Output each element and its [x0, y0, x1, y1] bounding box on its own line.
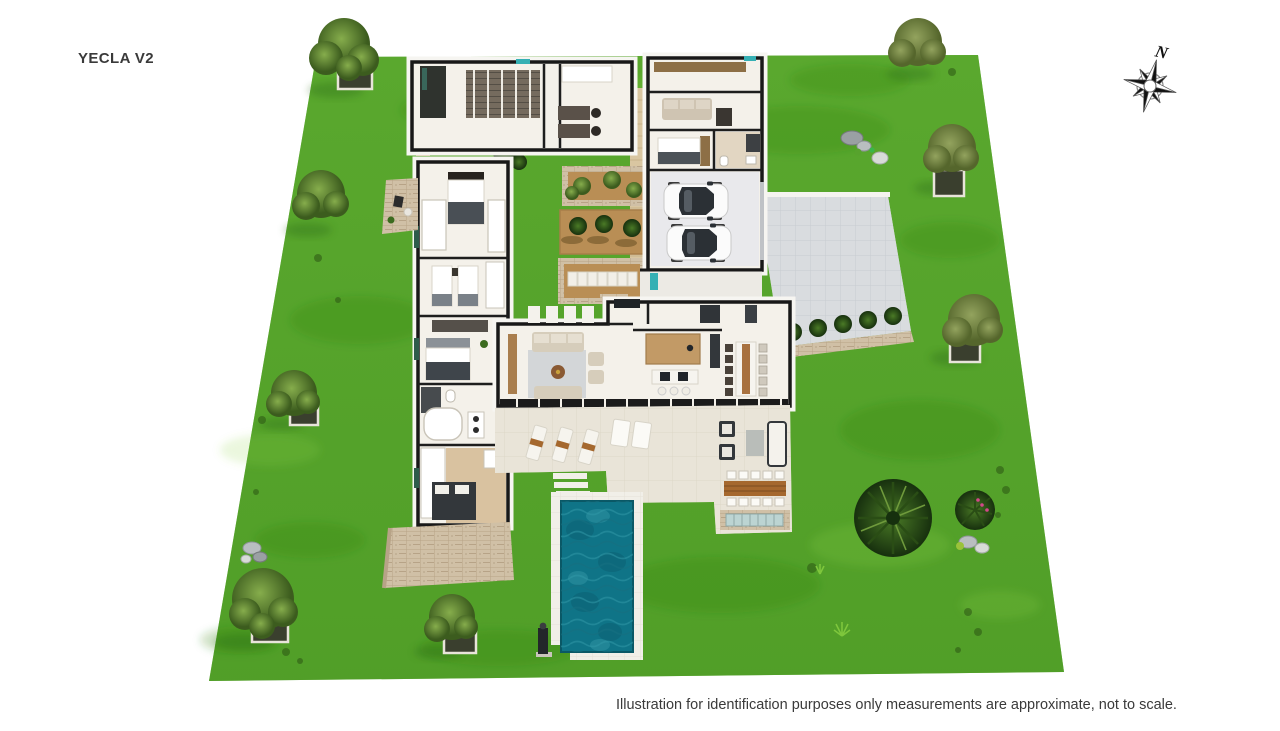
palm-bush-large [854, 479, 932, 557]
disclaimer-text: Illustration for identification purposes… [616, 697, 1177, 713]
plan-title: YECLA V2 [78, 50, 154, 67]
annex-building [409, 59, 635, 153]
living-block [495, 299, 793, 409]
floor-plan-illustration: N YECLA V2 Illustration for identificati… [0, 0, 1280, 731]
south-patio [384, 522, 514, 588]
driveway-top-wall [754, 192, 890, 197]
car-2 [667, 224, 731, 263]
compass-rose: N [1117, 36, 1187, 119]
teal-door [650, 273, 658, 290]
pool [536, 492, 643, 660]
courtyard-planter-olive-trees [560, 210, 648, 254]
garage [651, 172, 764, 266]
courtyard-planter-bushes [562, 166, 650, 206]
side-patio [382, 178, 418, 234]
northeast-wing [645, 55, 765, 273]
annex-window [516, 59, 530, 64]
north-label: N [1152, 41, 1170, 63]
car-1 [664, 182, 728, 221]
site-plan-canvas: N [0, 0, 1280, 731]
tree-top-left [308, 18, 379, 98]
south-bedroom [421, 448, 506, 523]
